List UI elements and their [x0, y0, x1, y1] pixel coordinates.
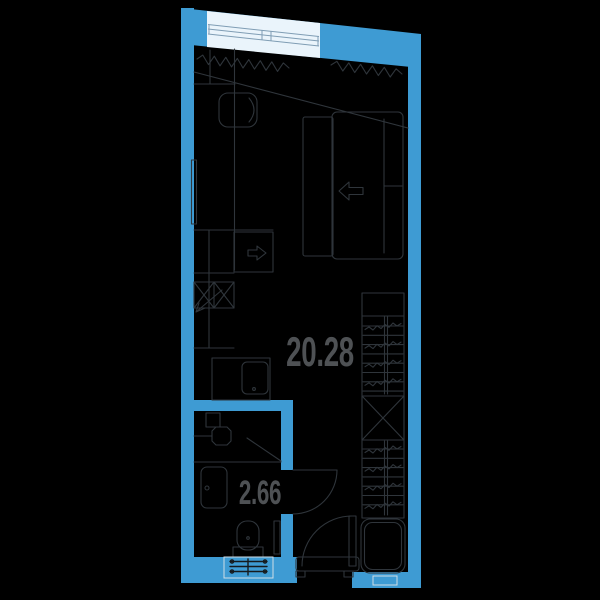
wall-bathroom-top [181, 400, 293, 411]
floor-plan: 20.28 2.66 [0, 0, 600, 600]
window [207, 11, 320, 58]
dishwasher [234, 232, 273, 272]
cooktop-sink [194, 282, 234, 312]
wardrobe-hanging-section [362, 396, 404, 440]
bathroom-door-swing [293, 470, 337, 514]
kitchen-counter [194, 230, 273, 400]
entrance-door [296, 516, 359, 577]
desk-chair [219, 93, 257, 127]
toilet [233, 521, 263, 557]
bathroom-area-label: 2.66 [239, 474, 281, 512]
refrigerator [242, 362, 268, 394]
wall-left [181, 8, 194, 583]
ceiling-break-line [194, 72, 408, 128]
wardrobe [362, 293, 404, 518]
double-bed [303, 112, 403, 259]
wall-bathroom-right-upper [281, 400, 293, 470]
shower-shelf [206, 413, 220, 427]
washing-machine [361, 519, 405, 573]
bathroom-door [293, 470, 337, 514]
radiator-left [197, 55, 289, 71]
dishwasher-arrow [248, 246, 266, 260]
shower-head [194, 427, 231, 445]
living-area-label: 20.28 [286, 328, 354, 375]
pipe-chase [274, 521, 280, 554]
wall-bathroom-right-lower [281, 514, 293, 557]
floor-plan-canvas: 20.28 2.66 [0, 0, 600, 600]
wardrobe-shelves-lower [363, 446, 403, 509]
wall-bottom-right [352, 572, 421, 588]
bed-arrow [339, 182, 363, 200]
bed-blanket [303, 117, 333, 256]
shower-glass [247, 438, 281, 461]
entrance-door-leaf [349, 516, 356, 566]
desk [194, 49, 235, 270]
wardrobe-shelves-upper [363, 323, 403, 391]
entrance-door-swing [302, 516, 352, 566]
wall-right [408, 34, 421, 588]
vanity-sink [201, 467, 227, 508]
